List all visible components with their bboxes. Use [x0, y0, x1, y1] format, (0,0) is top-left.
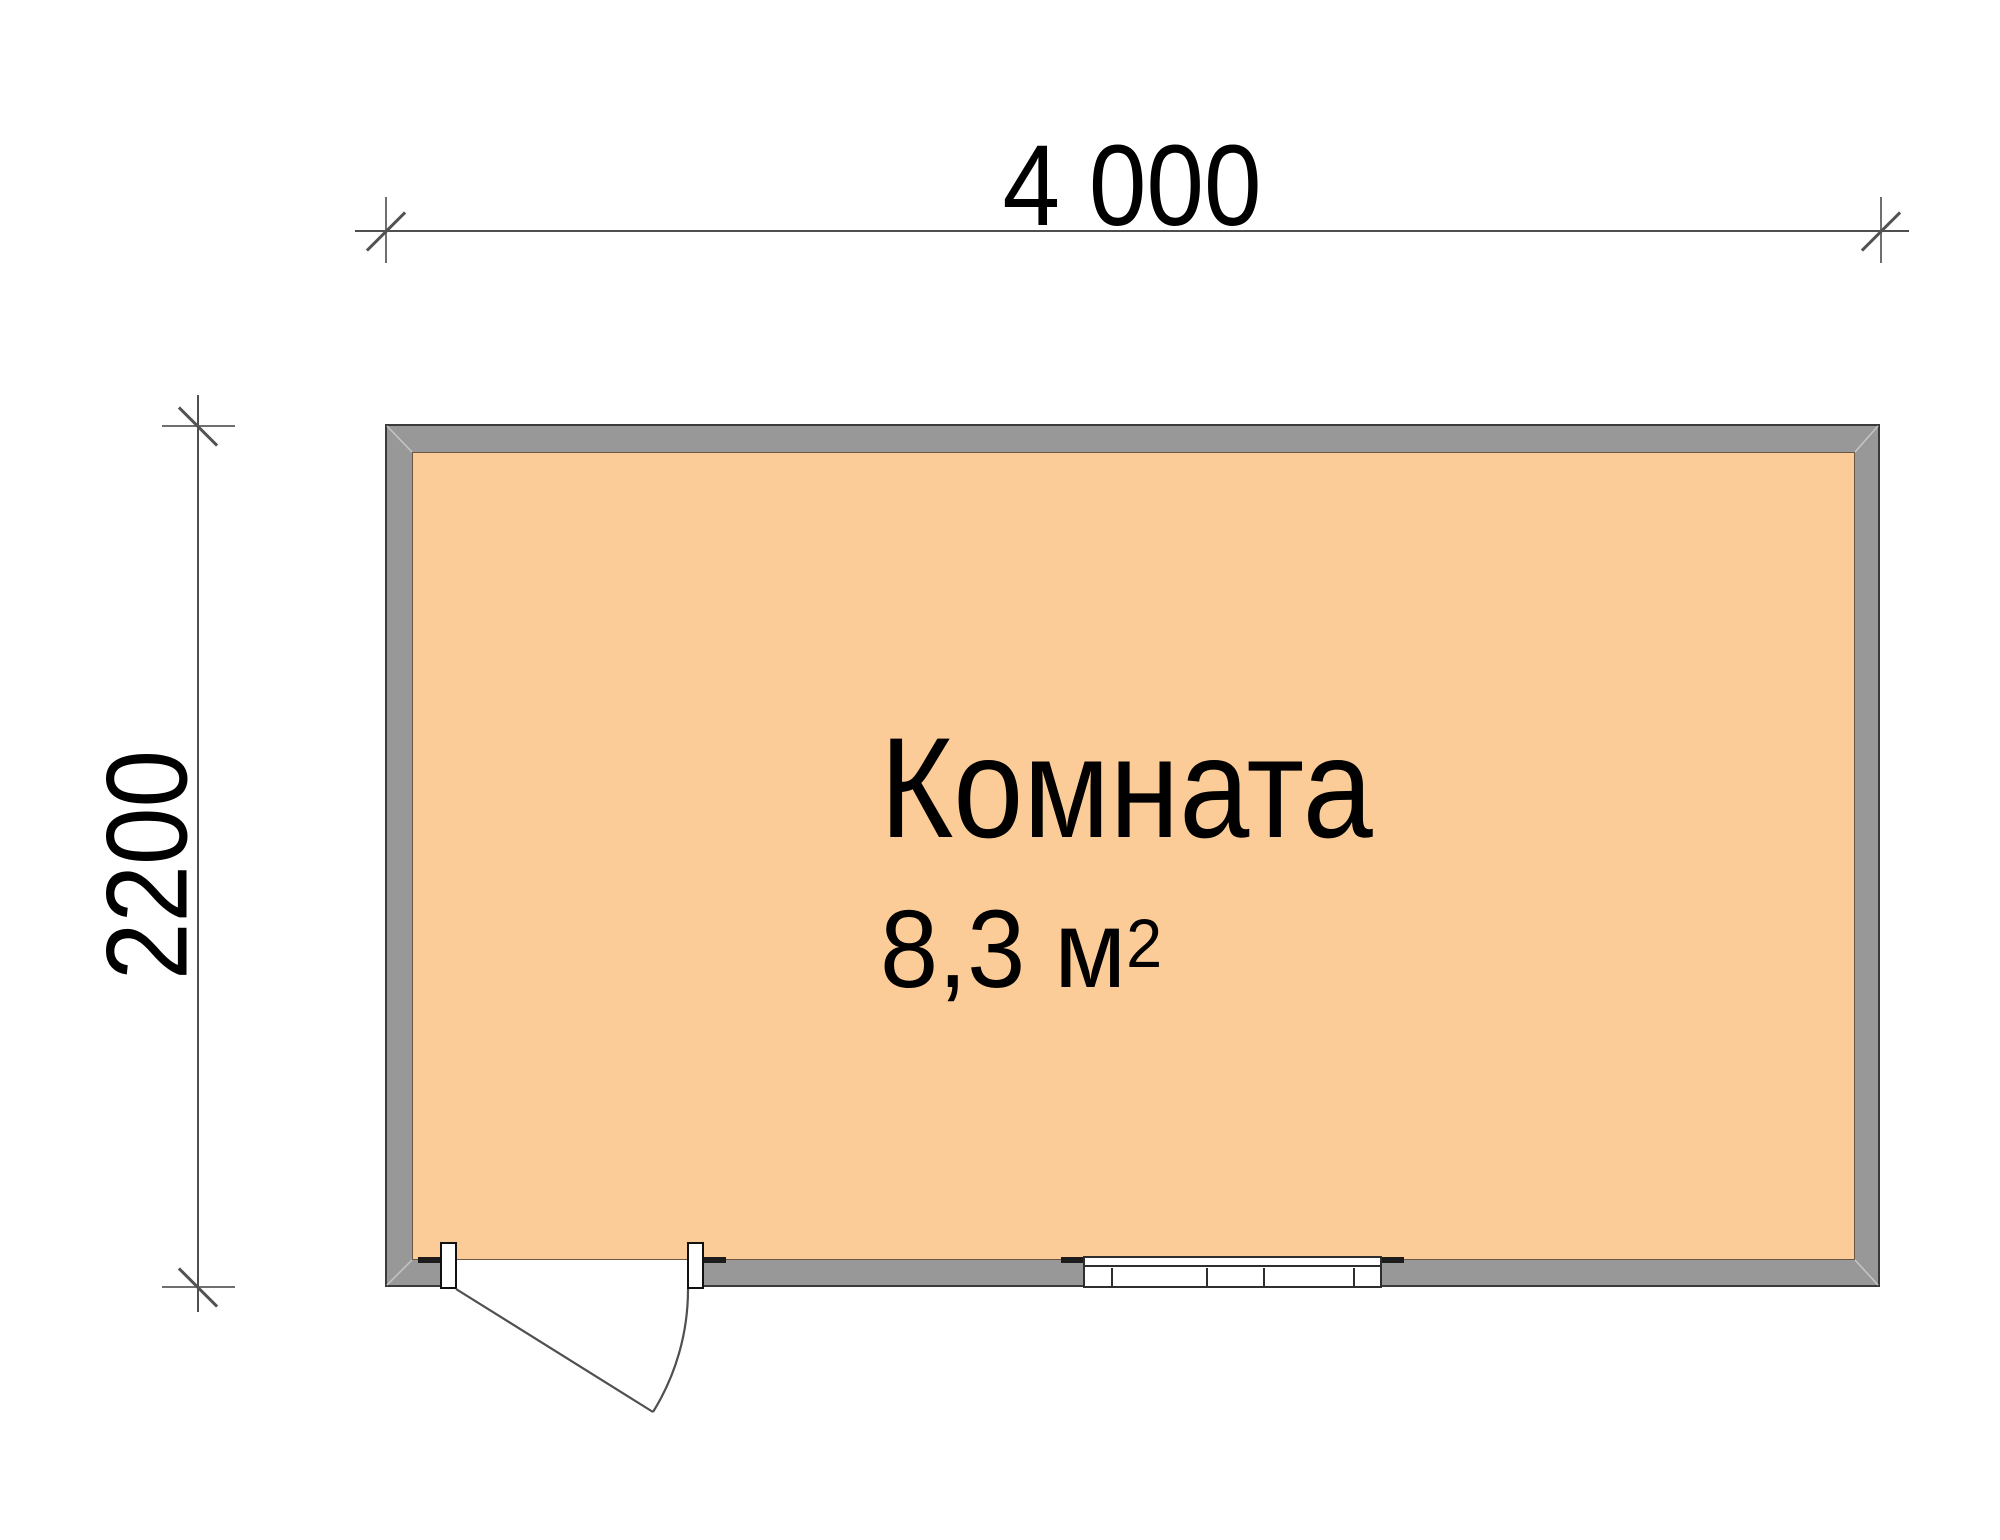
window-sill [1085, 1258, 1380, 1267]
wall-cap [1061, 1257, 1083, 1263]
door-leaf [456, 1289, 653, 1412]
room-area-exponent: 2 [1126, 906, 1162, 982]
width-dimension-line [355, 230, 1909, 232]
window-mullion [1353, 1268, 1355, 1286]
room-area: 8,3 м2 [880, 895, 1162, 1005]
door-arc [653, 1289, 688, 1412]
floor-plan: 4 000 2200 [0, 0, 2000, 1540]
wall-cap [1382, 1257, 1404, 1263]
window-mullion [1206, 1268, 1208, 1286]
door-opening [457, 1260, 688, 1290]
width-dimension-label: 4 000 [1002, 129, 1261, 244]
door-jamb [440, 1242, 457, 1289]
wall-cap [418, 1257, 440, 1263]
height-dimension-line [197, 395, 199, 1312]
window [1083, 1256, 1382, 1288]
room-area-value: 8,3 м [880, 888, 1126, 1011]
height-dimension-label: 2200 [91, 750, 206, 980]
door-jamb [687, 1242, 704, 1289]
window-mullion [1111, 1268, 1113, 1286]
wall-cap [704, 1257, 726, 1263]
window-mullion [1263, 1268, 1265, 1286]
room-name: Комната [880, 717, 1373, 860]
